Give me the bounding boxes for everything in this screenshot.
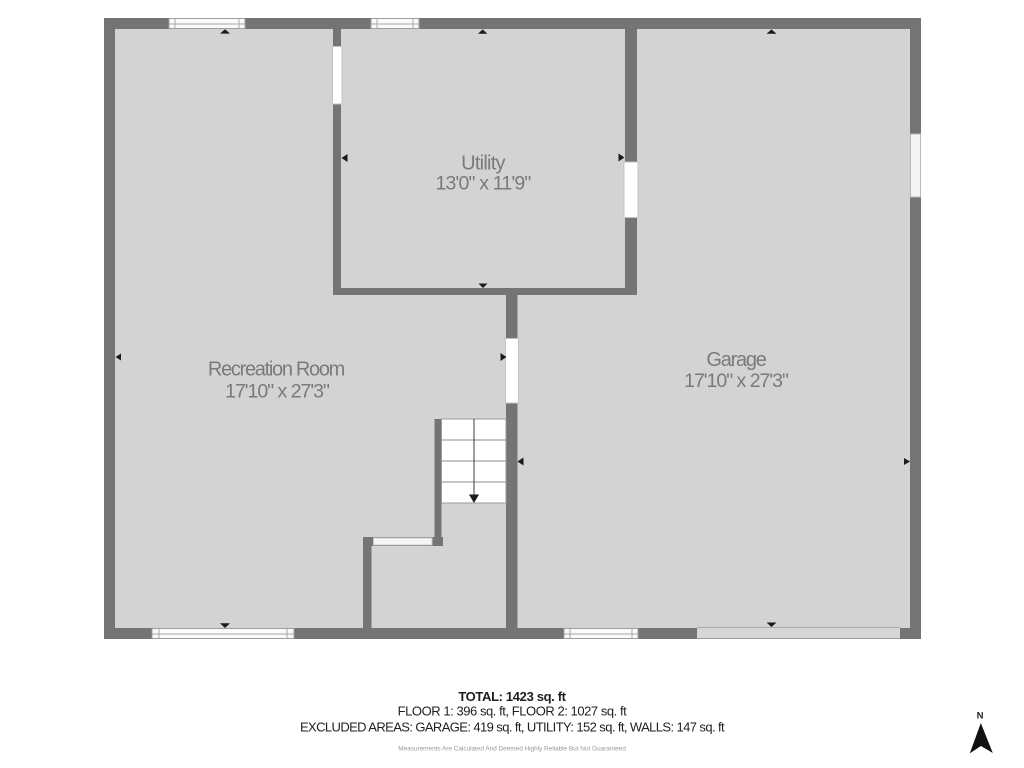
svg-text:Utility: Utility [461, 153, 505, 175]
svg-text:EXCLUDED AREAS: GARAGE: 419 sq: EXCLUDED AREAS: GARAGE: 419 sq. ft, UTIL… [300, 720, 725, 735]
svg-text:Measurements Are Calculated An: Measurements Are Calculated And Deemed H… [398, 745, 626, 752]
svg-text:17'10" x 27'3": 17'10" x 27'3" [684, 370, 789, 392]
svg-text:N: N [977, 711, 984, 722]
svg-text:13'0" x 11'9": 13'0" x 11'9" [435, 172, 531, 194]
svg-text:TOTAL: 1423 sq. ft: TOTAL: 1423 sq. ft [458, 689, 566, 704]
svg-text:Recreation Room: Recreation Room [208, 359, 345, 381]
svg-text:FLOOR 1: 396 sq. ft, FLOOR 2:: FLOOR 1: 396 sq. ft, FLOOR 2: 1027 sq. f… [398, 703, 627, 718]
svg-text:17'10" x 27'3": 17'10" x 27'3" [225, 380, 330, 402]
svg-text:Garage: Garage [706, 349, 766, 371]
